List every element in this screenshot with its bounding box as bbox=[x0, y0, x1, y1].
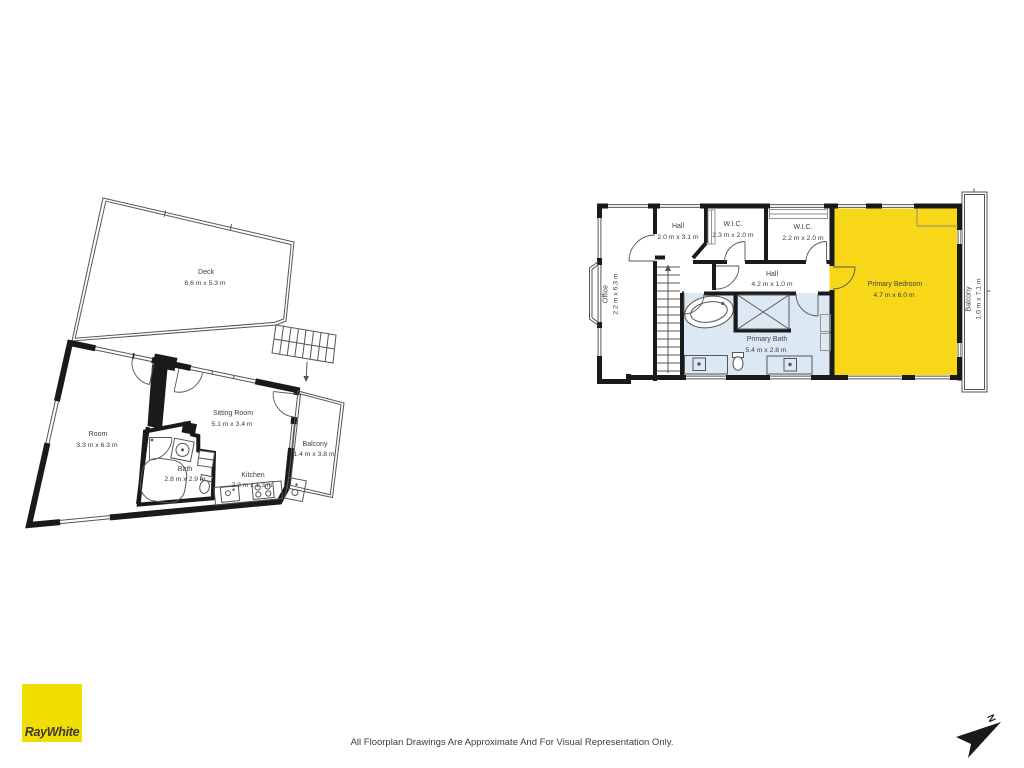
room-dims: 1.4 m x 3.8 m bbox=[293, 451, 335, 458]
exterior-stairs bbox=[272, 325, 336, 382]
toilet-icon bbox=[733, 353, 744, 371]
room-divider-wall bbox=[148, 366, 168, 430]
sink-icon bbox=[171, 438, 194, 461]
toilet-alcove bbox=[198, 451, 215, 468]
room-label: W.I.C. bbox=[723, 221, 742, 228]
deck-outline bbox=[72, 198, 294, 341]
room-label: Balcony bbox=[966, 286, 973, 311]
room-label: Kitchen bbox=[241, 472, 264, 479]
room-dims: 2.3 m x 2.0 m bbox=[712, 232, 754, 239]
north-arrow-icon: N bbox=[956, 713, 1001, 758]
shower-icon bbox=[150, 438, 173, 461]
room-dims: 4.2 m x 1.0 m bbox=[751, 281, 793, 288]
lower-floorplan: Deck 8.6 m x 5.3 m Room 3.3 m x 6.3 m Si… bbox=[29, 198, 344, 525]
room-label: Hall bbox=[766, 271, 779, 278]
room-dims: 2.2 m x 2.0 m bbox=[782, 235, 824, 242]
room-label: Primary Bath bbox=[747, 336, 788, 343]
bath-step-wall bbox=[182, 422, 198, 436]
room-dims: 5.1 m x 3.4 m bbox=[211, 421, 253, 428]
room-label: Sitting Room bbox=[213, 410, 253, 417]
room-label: Balcony bbox=[303, 441, 328, 448]
north-label: N bbox=[984, 713, 997, 724]
room-dims: 2.8 m x 2.9 m bbox=[164, 476, 206, 483]
upper-floorplan: Office 2.2 m x 6.3 m Hall 2.0 m x 3.1 m … bbox=[590, 189, 991, 393]
brand-logo: RayWhite bbox=[22, 684, 82, 742]
room-dims: 2.3 m x 1.3 m bbox=[231, 482, 273, 489]
room-dims: 2.0 m x 3.1 m bbox=[657, 234, 699, 241]
room-label: Room bbox=[89, 431, 108, 438]
floorplan-sheet: Deck 8.6 m x 5.3 m Room 3.3 m x 6.3 m Si… bbox=[0, 0, 1024, 768]
disclaimer-text: All Floorplan Drawings Are Approximate A… bbox=[351, 737, 674, 748]
room-dims: 3.3 m x 6.3 m bbox=[76, 442, 118, 449]
room-label: Deck bbox=[198, 269, 214, 276]
room-label: Hall bbox=[672, 223, 685, 230]
room-dims: 5.4 m x 2.8 m bbox=[745, 347, 787, 354]
logo-wordmark: RayWhite bbox=[25, 725, 80, 739]
room-dims: 2.2 m x 6.3 m bbox=[613, 273, 620, 315]
room-label: Bath bbox=[178, 466, 193, 473]
floorplan-drawing: Deck 8.6 m x 5.3 m Room 3.3 m x 6.3 m Si… bbox=[0, 0, 1024, 768]
room-label: Primary Bedroom bbox=[868, 281, 923, 288]
room-label: Office bbox=[603, 285, 610, 303]
room-dims: 1.0 m x 7.1 m bbox=[976, 278, 983, 320]
room-dims: 8.6 m x 5.3 m bbox=[184, 280, 226, 287]
room-label: W.I.C. bbox=[793, 224, 812, 231]
room-dims: 4.7 m x 6.0 m bbox=[873, 292, 915, 299]
